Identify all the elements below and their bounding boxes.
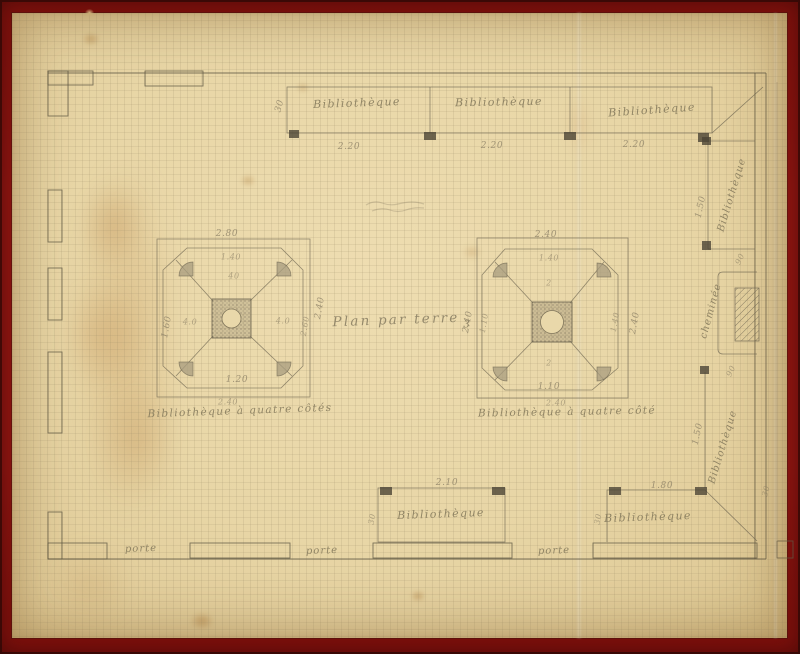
right-upper-bookcase (708, 141, 755, 249)
bottom-middle-bookcase (378, 488, 505, 542)
bottom-right-bookcase (607, 490, 757, 542)
plan-linework (0, 0, 800, 654)
scanned-floor-plan: Bibliothèque Bibliothèque Bibliothèque 2… (0, 0, 800, 654)
erased-scribble (366, 202, 424, 212)
table-right (477, 238, 628, 398)
wall-outline (48, 71, 793, 559)
table-left (157, 239, 310, 397)
chimney (718, 272, 759, 354)
shelf-feet (289, 130, 711, 495)
top-bookcase-row (287, 87, 763, 133)
